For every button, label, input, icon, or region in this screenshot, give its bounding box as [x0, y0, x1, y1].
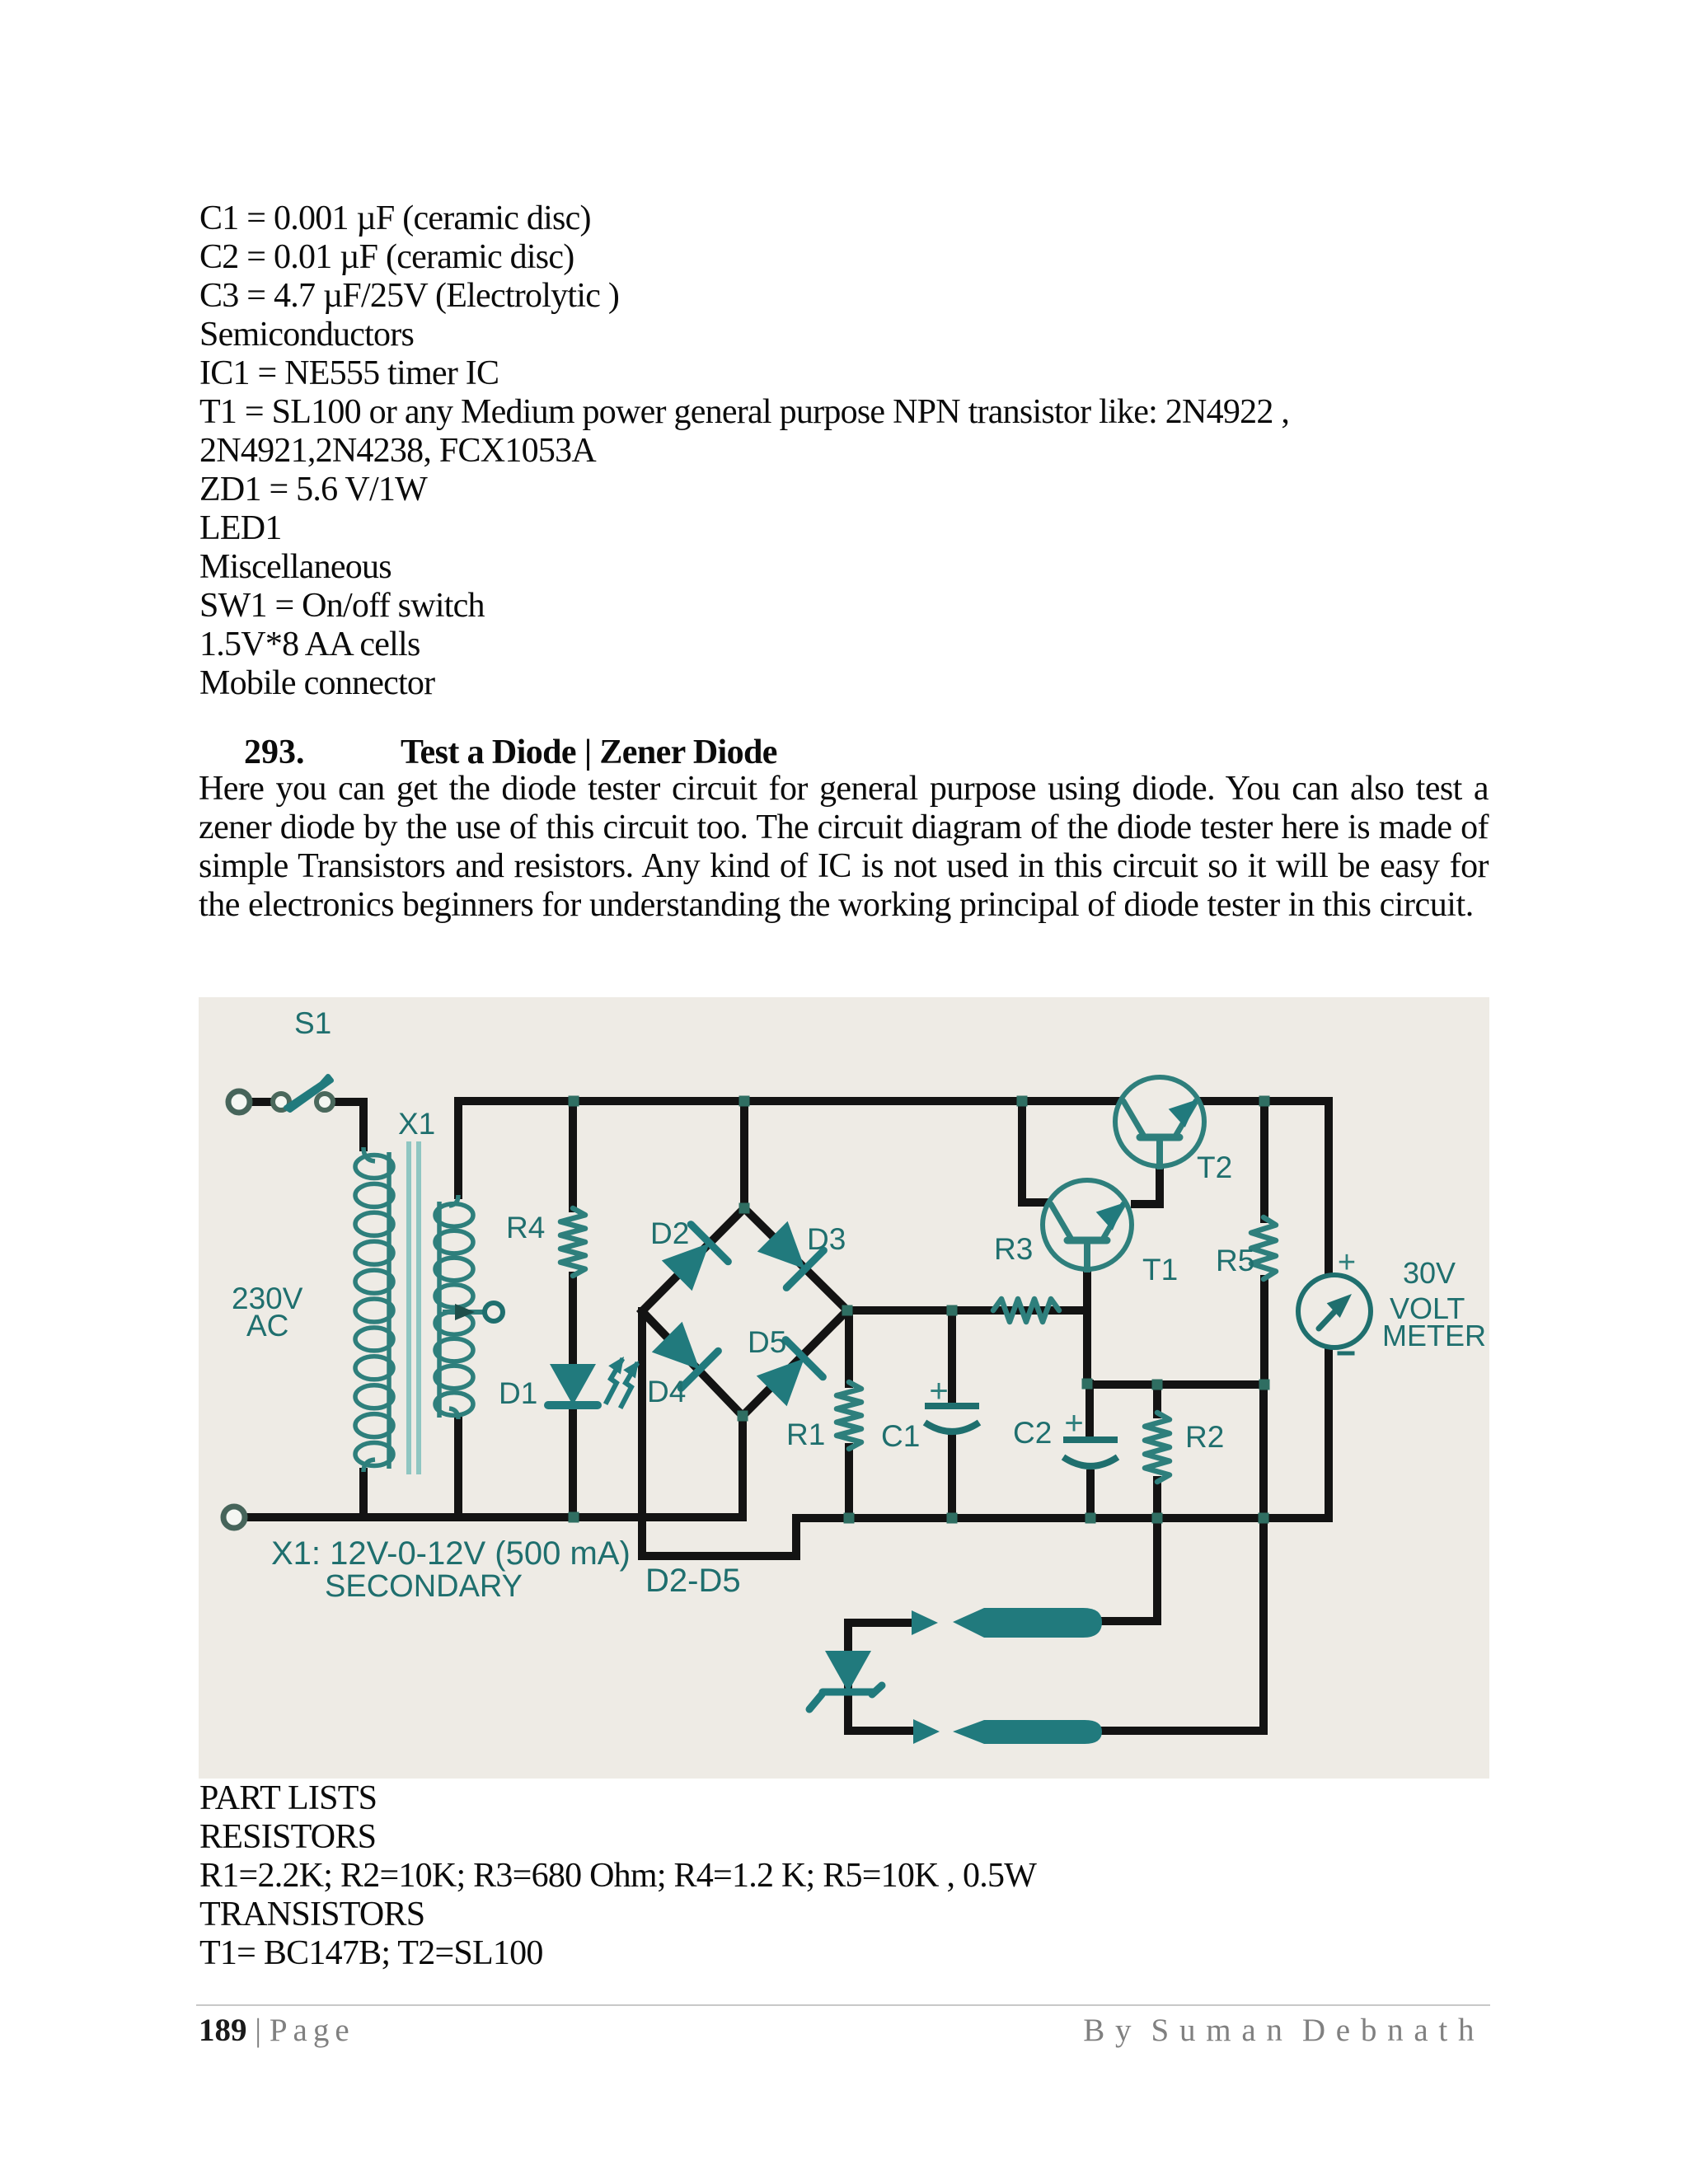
svg-text:R1: R1: [786, 1418, 825, 1451]
svg-text:T1: T1: [1142, 1253, 1178, 1286]
svg-text:R2: R2: [1185, 1420, 1224, 1454]
svg-text:T2: T2: [1197, 1151, 1232, 1184]
svg-text:AC: AC: [246, 1309, 288, 1343]
svg-text:D2: D2: [650, 1216, 689, 1250]
svg-text:+: +: [1064, 1405, 1083, 1441]
svg-text:R3: R3: [994, 1232, 1033, 1266]
svg-text:D2-D5: D2-D5: [645, 1563, 741, 1599]
svg-text:METER: METER: [1382, 1319, 1486, 1352]
svg-text:R5: R5: [1216, 1244, 1254, 1277]
svg-text:30V: 30V: [1403, 1256, 1456, 1290]
svg-text:X1: X1: [398, 1107, 435, 1141]
svg-text:D1: D1: [499, 1376, 537, 1410]
svg-text:SECONDARY: SECONDARY: [325, 1569, 523, 1604]
svg-text:C1: C1: [881, 1419, 920, 1453]
svg-text:D4: D4: [647, 1375, 686, 1408]
svg-text:X1: 12V-0-12V (500 mA): X1: 12V-0-12V (500 mA): [271, 1535, 631, 1572]
svg-text:D5: D5: [748, 1325, 786, 1359]
svg-text:D3: D3: [807, 1222, 846, 1256]
svg-text:C2: C2: [1013, 1416, 1052, 1450]
svg-text:+: +: [1338, 1245, 1356, 1280]
svg-text:R4: R4: [506, 1211, 545, 1244]
svg-text:S1: S1: [294, 1006, 331, 1040]
